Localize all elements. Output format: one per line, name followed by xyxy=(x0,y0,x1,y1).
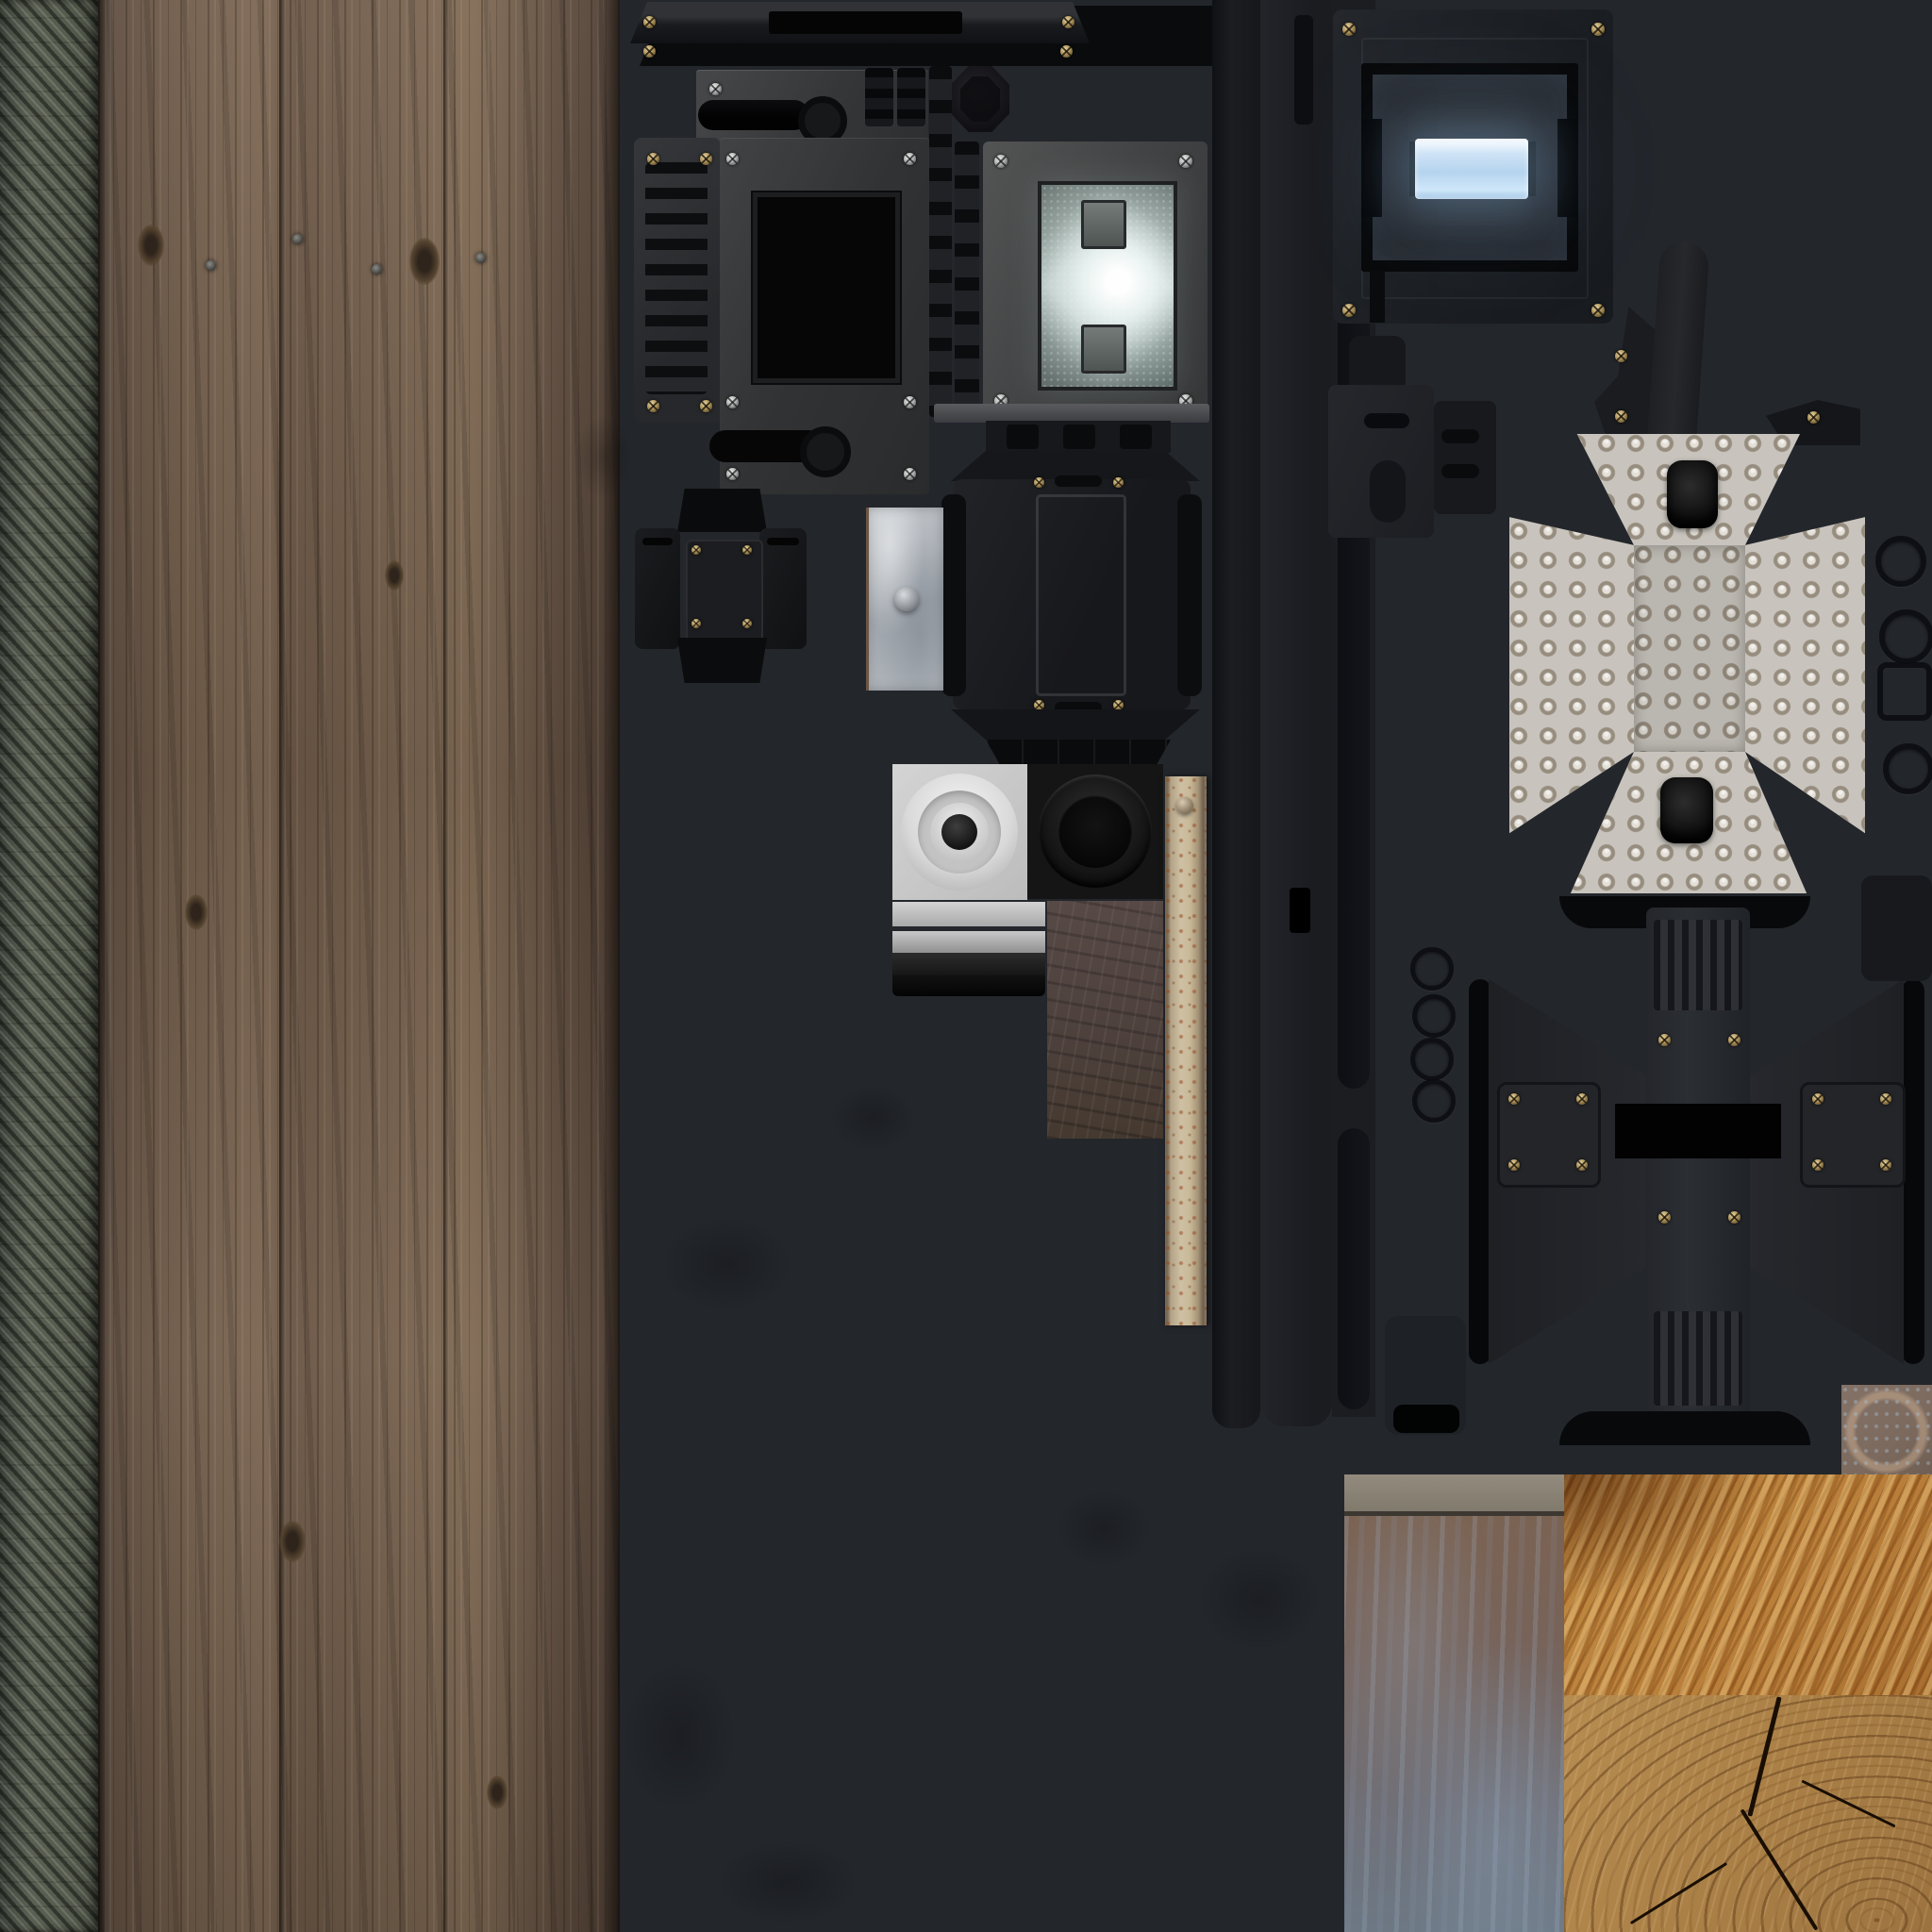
screw-icon xyxy=(1060,45,1073,58)
glow-bar xyxy=(1415,139,1528,199)
screw-icon xyxy=(904,396,916,408)
lamp-side-tab xyxy=(1361,119,1382,217)
wood-knot xyxy=(185,894,208,930)
screw-icon xyxy=(1615,350,1627,362)
bone-strip xyxy=(1165,776,1207,1325)
channel-slot xyxy=(1338,1128,1370,1409)
glow-lamp-module xyxy=(1333,9,1613,324)
nail xyxy=(206,260,216,271)
screw-icon xyxy=(643,45,656,58)
ring-detail xyxy=(1410,1038,1454,1081)
box-hood xyxy=(986,740,1171,766)
wood-knot xyxy=(279,1521,306,1562)
screw-icon xyxy=(1342,304,1356,317)
screw-icon xyxy=(1179,155,1192,168)
cross-knob-top xyxy=(1667,460,1718,528)
screw-icon xyxy=(1807,411,1820,424)
ring-detail xyxy=(1412,1079,1456,1123)
square-detail xyxy=(1877,662,1932,721)
column-ribs-bottom xyxy=(1654,1311,1742,1406)
screw-icon xyxy=(691,619,701,628)
trim-bar-grey xyxy=(892,931,1045,953)
stain-blob xyxy=(717,1840,858,1924)
floodlight-foot-bar xyxy=(934,404,1209,423)
cross-center-plate xyxy=(1634,545,1745,752)
vent-strip xyxy=(955,142,979,421)
screw-icon xyxy=(1508,1159,1520,1171)
latch-tab xyxy=(1349,336,1406,392)
bracket-wing-left xyxy=(635,528,680,649)
screw-icon xyxy=(1812,1159,1824,1171)
screw-icon xyxy=(904,153,916,165)
plank-seam xyxy=(279,0,286,1932)
box-slot xyxy=(1055,475,1102,487)
screw-icon xyxy=(726,468,739,480)
bracket-hood-top xyxy=(677,489,767,532)
plank-edge-shadow xyxy=(604,0,620,1932)
lamp-tab xyxy=(1081,325,1126,374)
latch-slot xyxy=(1364,413,1409,428)
black-crossbar xyxy=(1615,1104,1781,1158)
painted-slab-cap xyxy=(1344,1474,1564,1516)
trim-bar-dark xyxy=(892,953,1045,975)
lamp-side-tab xyxy=(1557,119,1578,217)
slab-slot xyxy=(1441,429,1479,443)
screw-icon xyxy=(691,545,701,555)
dash-vents xyxy=(865,68,893,126)
ring-detail xyxy=(1412,994,1456,1038)
nail xyxy=(372,264,382,275)
octagon-knob xyxy=(951,66,1009,132)
painted-metal-slab xyxy=(1344,1516,1564,1932)
stain-blob xyxy=(575,415,632,500)
ring-detail xyxy=(1879,609,1932,664)
screw-icon xyxy=(1591,304,1605,317)
neck-slat xyxy=(1007,425,1039,449)
column-ribs-top xyxy=(1654,920,1742,1010)
stain-blob xyxy=(1057,1491,1151,1566)
screw-icon xyxy=(1728,1034,1740,1046)
stain-blob xyxy=(660,1217,792,1311)
plank-seam xyxy=(443,0,449,1932)
wood-knot xyxy=(409,238,440,285)
screw-icon xyxy=(647,153,659,165)
speaker-white xyxy=(892,764,1027,900)
screw-icon xyxy=(1034,477,1044,488)
box-etched-frame xyxy=(1036,494,1126,696)
screw-icon xyxy=(700,153,712,165)
top-rail-bar xyxy=(630,2,1090,43)
vent-strip xyxy=(929,66,952,417)
texture-atlas-sheet xyxy=(0,0,1932,1932)
stain-blob xyxy=(830,1085,915,1151)
dark-cross-mechanism xyxy=(1469,896,1924,1448)
screw-icon xyxy=(1113,477,1124,488)
wood-plank-wall xyxy=(98,0,620,1932)
end-bar-left xyxy=(1469,979,1491,1364)
screw-icon xyxy=(1576,1159,1588,1171)
screw-icon xyxy=(1034,700,1044,710)
pipe xyxy=(698,100,809,130)
screw-icon xyxy=(904,468,916,480)
pocket-shadow xyxy=(1393,1405,1459,1433)
ring-detail xyxy=(1875,536,1926,587)
screw-icon xyxy=(1615,410,1627,423)
clamp-bracket xyxy=(635,489,807,683)
floodlight xyxy=(983,142,1207,423)
under-strip xyxy=(1370,270,1385,323)
leather-patch xyxy=(1047,901,1163,1139)
screw-icon xyxy=(643,16,656,28)
screw-icon xyxy=(742,545,752,555)
rail-slat-b xyxy=(1261,0,1332,1426)
screw-icon xyxy=(726,396,739,408)
screw-icon xyxy=(1880,1093,1891,1105)
screw-icon xyxy=(1658,1211,1671,1224)
box-neck-top xyxy=(986,421,1171,453)
hump-bottom xyxy=(1559,1411,1810,1445)
slab-slot xyxy=(1441,464,1479,478)
wood-knot xyxy=(487,1775,508,1809)
crack xyxy=(1740,1808,1819,1930)
speaker-black xyxy=(1027,764,1163,899)
screw-icon xyxy=(647,400,659,412)
log-end-grain xyxy=(1564,1695,1932,1932)
marble-plate xyxy=(866,508,943,691)
wing-slot xyxy=(642,538,673,545)
rail-slat-a xyxy=(1212,0,1261,1428)
lamp-tab xyxy=(1081,200,1126,249)
screw-icon xyxy=(1728,1211,1740,1224)
screw-icon xyxy=(726,153,739,165)
screw-icon xyxy=(700,400,712,412)
speaker-center xyxy=(941,814,977,850)
rail-notch xyxy=(1294,15,1313,125)
knob-face xyxy=(960,76,1000,122)
latch-slot-vertical xyxy=(1370,460,1406,523)
screw-icon xyxy=(1062,16,1074,28)
screw-icon xyxy=(1113,700,1124,710)
crack xyxy=(1630,1862,1727,1924)
nail xyxy=(292,234,303,244)
trim-bar-black xyxy=(892,975,1045,996)
box-shoulder-bottom xyxy=(951,709,1200,740)
screw-icon xyxy=(1658,1034,1671,1046)
dash-vents xyxy=(897,68,925,126)
nail xyxy=(475,253,486,263)
stain-blob xyxy=(1198,1547,1321,1651)
bracket-wing-right xyxy=(759,528,807,649)
wing-slot xyxy=(767,538,799,545)
corrugated-strip xyxy=(0,0,98,1932)
ring-detail xyxy=(1410,947,1454,991)
rust-ring-square xyxy=(1841,1385,1932,1474)
rail-channel xyxy=(769,11,962,34)
vent-panel xyxy=(634,138,721,423)
wood-knot xyxy=(385,560,404,591)
corner-slab xyxy=(1861,875,1932,981)
screw-icon xyxy=(1508,1093,1520,1105)
rail-tab xyxy=(1290,888,1310,933)
vent-slots xyxy=(645,162,708,394)
neck-slat xyxy=(1120,425,1152,449)
slotted-slab xyxy=(1434,401,1496,514)
screw-icon xyxy=(1591,23,1605,36)
plank-seam xyxy=(98,0,111,1932)
box-wing xyxy=(1177,494,1202,696)
screen-pipe-socket xyxy=(800,426,851,477)
bracket-hood-bottom xyxy=(677,638,767,683)
rough-cut-wood xyxy=(1564,1474,1932,1695)
screw-icon xyxy=(1880,1159,1891,1171)
cone-inner xyxy=(1058,794,1132,868)
screw-icon xyxy=(709,83,722,95)
screw-icon xyxy=(1812,1093,1824,1105)
bone-strip-bolt xyxy=(1176,797,1193,814)
trim-bar-light xyxy=(892,902,1045,926)
dimpled-cross-plate xyxy=(1509,434,1865,893)
wood-knot xyxy=(138,225,164,266)
screw-icon xyxy=(994,155,1008,168)
marble-bolt xyxy=(894,587,919,611)
crack xyxy=(1747,1696,1781,1816)
crack xyxy=(1801,1780,1895,1828)
neck-slat xyxy=(1063,425,1095,449)
box-wing xyxy=(941,494,966,696)
screen-window xyxy=(753,192,900,383)
screw-icon xyxy=(1576,1093,1588,1105)
screw-icon xyxy=(1342,23,1356,36)
screw-icon xyxy=(742,619,752,628)
cross-knob-bottom xyxy=(1660,777,1713,843)
stain-blob xyxy=(623,1660,736,1811)
ring-detail xyxy=(1883,743,1932,794)
